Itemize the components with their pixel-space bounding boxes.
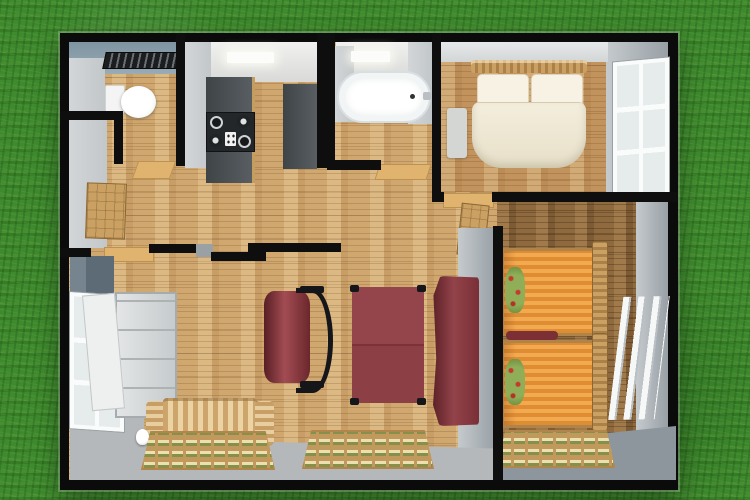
ceiling-vent-icon <box>102 52 180 69</box>
stove-control-panel <box>225 132 236 146</box>
bed-floral-pillow <box>505 267 525 313</box>
armchair-frame-bottom <box>300 381 324 388</box>
armchair-frame <box>296 288 333 393</box>
bed-a-headboard-plank <box>592 241 608 339</box>
wall-wc-bottom-vertical <box>114 118 123 164</box>
wall-bathroom-bottom <box>327 160 381 170</box>
entry-door-leaf <box>85 182 127 239</box>
stove-burner <box>238 135 251 148</box>
wall-hall-partition-d <box>248 243 341 252</box>
stove-burner <box>210 116 223 129</box>
table <box>352 287 424 403</box>
table-leg <box>417 398 426 405</box>
wall-main-bedroom-bottom-left <box>432 192 444 202</box>
bathroom-threshold <box>374 164 431 180</box>
toilet-bowl <box>121 86 156 118</box>
wall-hall-partition-b <box>149 244 197 253</box>
twin-bedroom-rug <box>497 430 615 468</box>
main-bedroom-window <box>613 58 669 201</box>
bathtub-drain <box>410 94 415 99</box>
wall-main-bedroom-bottom <box>492 192 678 202</box>
kitchen-ceiling-light <box>227 52 274 63</box>
table-leg <box>350 398 359 405</box>
wall-wc-right <box>176 33 185 166</box>
bed-headboard <box>471 60 587 73</box>
wall-kitchen-bathroom <box>317 33 335 168</box>
wc-door-threshold <box>132 161 177 179</box>
stove-cooktop <box>206 112 255 152</box>
living-rug-left <box>141 431 275 470</box>
nightstand <box>447 108 467 158</box>
kettle <box>136 429 149 445</box>
living-rug-center <box>302 430 434 469</box>
stove-burner <box>237 115 250 128</box>
wall-hall-partition-a <box>60 248 91 257</box>
table-leg <box>350 285 359 292</box>
armchair <box>262 288 334 386</box>
wall-twin-bedroom-left <box>493 226 503 480</box>
bathroom-ceiling-light <box>351 51 390 62</box>
bathtub-faucet <box>423 92 431 100</box>
bed-floral-pillow <box>505 359 525 405</box>
table-leg <box>417 285 426 292</box>
folded-blanket <box>506 331 558 340</box>
bed-duvet <box>472 102 586 168</box>
kitchen-tall-cabinet <box>283 84 320 169</box>
sideboard <box>433 276 479 426</box>
floor-plan-scene <box>0 0 750 500</box>
double-bed <box>471 60 587 170</box>
wall-bathroom-right <box>432 33 441 195</box>
bathtub <box>337 71 431 123</box>
stove-burner <box>209 134 222 147</box>
main-bedroom-back-wall <box>441 42 608 62</box>
wall-hall-partition-c <box>211 252 266 261</box>
bed-b-headboard-plank <box>592 333 608 431</box>
armchair-frame-top <box>300 286 324 293</box>
